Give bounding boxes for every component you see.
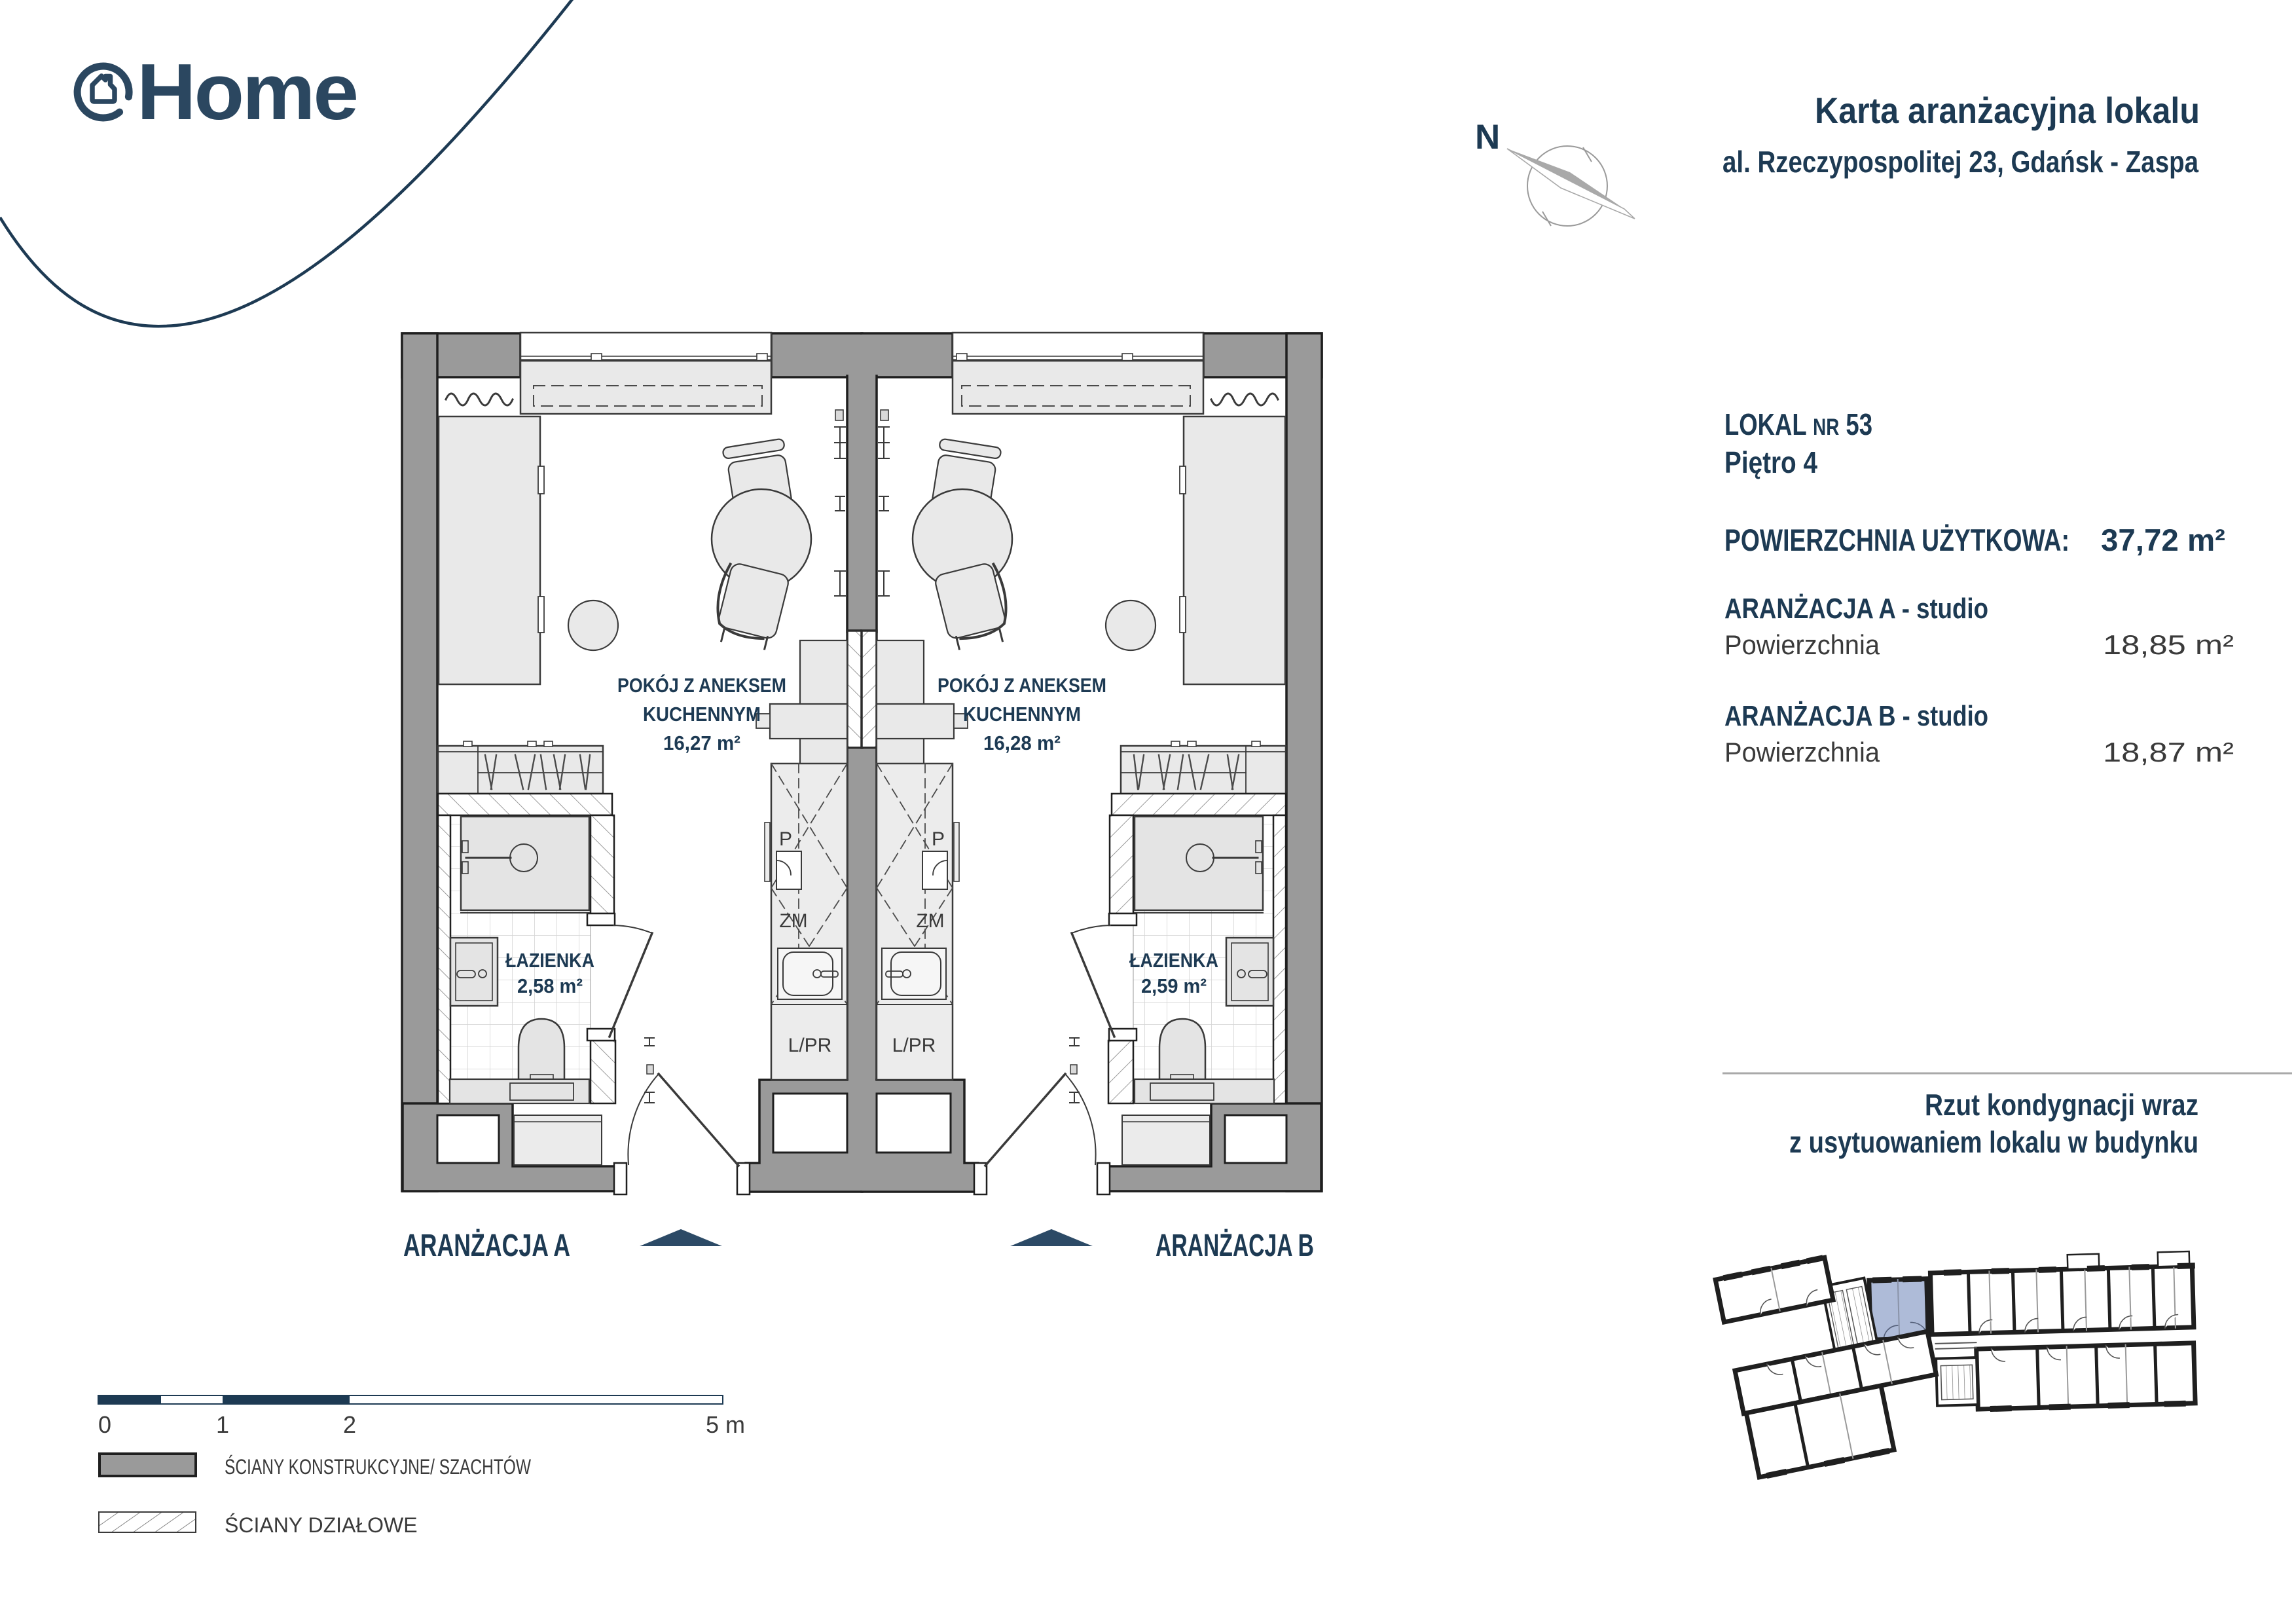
- svg-text:2: 2: [343, 1411, 356, 1438]
- svg-text:ŁAZIENKA: ŁAZIENKA: [1129, 949, 1218, 972]
- svg-text:POKÓJ Z ANEKSEM: POKÓJ Z ANEKSEM: [938, 673, 1106, 697]
- svg-text:ZM: ZM: [916, 910, 944, 932]
- svg-text:N: N: [1475, 118, 1500, 157]
- svg-text:POKÓJ Z ANEKSEM: POKÓJ Z ANEKSEM: [617, 673, 786, 697]
- svg-text:16,27 m²: 16,27 m²: [663, 731, 740, 754]
- svg-text:37,72 m²: 37,72 m²: [2101, 523, 2225, 557]
- svg-text:ŚCIANY DZIAŁOWE: ŚCIANY DZIAŁOWE: [225, 1513, 418, 1537]
- svg-text:Karta aranżacyjna lokalu: Karta aranżacyjna lokalu: [1815, 90, 2200, 131]
- svg-text:ARANŻACJA B - studio: ARANŻACJA B - studio: [1724, 700, 1988, 732]
- svg-text:0: 0: [98, 1411, 111, 1438]
- svg-text:P: P: [932, 828, 945, 850]
- svg-text:ŁAZIENKA: ŁAZIENKA: [505, 949, 594, 972]
- svg-text:Rzut kondygnacji wraz: Rzut kondygnacji wraz: [1925, 1088, 2198, 1122]
- svg-text:L/PR: L/PR: [788, 1035, 832, 1056]
- svg-text:18,85 m²: 18,85 m²: [2103, 629, 2234, 660]
- svg-text:ŚCIANY KONSTRUKCYJNE/ SZACHTÓW: ŚCIANY KONSTRUKCYJNE/ SZACHTÓW: [225, 1455, 532, 1479]
- svg-text:KUCHENNYM: KUCHENNYM: [963, 703, 1081, 726]
- svg-text:al. Rzeczypospolitej 23, Gdańs: al. Rzeczypospolitej 23, Gdańsk - Zaspa: [1722, 145, 2198, 179]
- svg-text:18,87 m²: 18,87 m²: [2103, 737, 2234, 767]
- svg-text:2,58 m²: 2,58 m²: [517, 974, 583, 997]
- svg-text:Powierzchnia: Powierzchnia: [1724, 629, 1880, 660]
- svg-text:2,59 m²: 2,59 m²: [1141, 974, 1207, 997]
- svg-text:z usytuowaniem lokalu w budynk: z usytuowaniem lokalu w budynku: [1789, 1125, 2198, 1159]
- svg-text:KUCHENNYM: KUCHENNYM: [643, 703, 761, 726]
- svg-text:ARANŻACJA A - studio: ARANŻACJA A - studio: [1724, 593, 1988, 625]
- svg-text:LOKAL NR 53: LOKAL NR 53: [1724, 407, 1872, 441]
- svg-text:P: P: [779, 828, 792, 850]
- svg-text:ARANŻACJA B: ARANŻACJA B: [1156, 1228, 1314, 1263]
- svg-text:16,28 m²: 16,28 m²: [983, 731, 1061, 754]
- svg-text:1: 1: [216, 1411, 229, 1438]
- svg-text:POWIERZCHNIA UŻYTKOWA:: POWIERZCHNIA UŻYTKOWA:: [1724, 523, 2069, 557]
- svg-text:Home: Home: [137, 47, 357, 136]
- svg-text:ARANŻACJA A: ARANŻACJA A: [403, 1228, 570, 1263]
- svg-text:ZM: ZM: [779, 910, 807, 932]
- svg-text:L/PR: L/PR: [892, 1035, 936, 1056]
- svg-text:5 m: 5 m: [706, 1411, 745, 1438]
- svg-text:Piętro 4: Piętro 4: [1724, 445, 1817, 479]
- svg-text:Powierzchnia: Powierzchnia: [1724, 737, 1880, 767]
